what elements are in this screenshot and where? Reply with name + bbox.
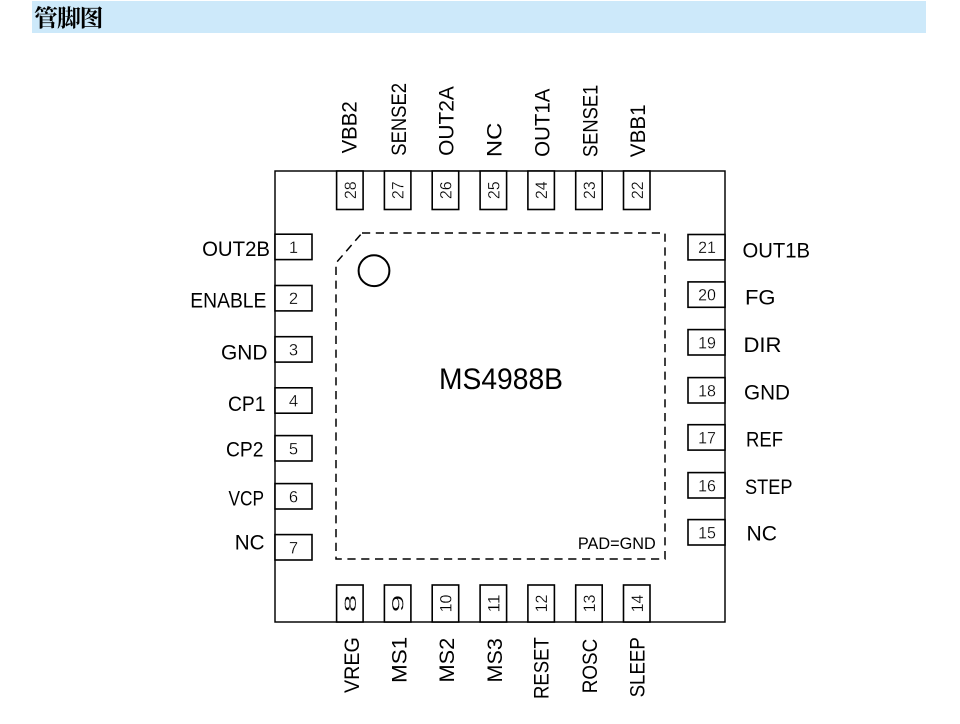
svg-text:22: 22: [628, 181, 647, 199]
svg-text:MS2: MS2: [434, 638, 459, 683]
svg-text:18: 18: [698, 381, 716, 400]
svg-text:4: 4: [289, 392, 298, 411]
svg-text:NC: NC: [482, 123, 507, 157]
svg-text:RESET: RESET: [528, 637, 553, 699]
svg-text:GND: GND: [221, 339, 268, 364]
svg-text:20: 20: [698, 286, 716, 305]
svg-text:ENABLE: ENABLE: [190, 288, 266, 313]
svg-text:25: 25: [484, 181, 503, 199]
svg-text:VREG: VREG: [339, 637, 364, 693]
svg-text:13: 13: [580, 595, 599, 613]
svg-text:16: 16: [698, 476, 716, 495]
svg-text:OUT2B: OUT2B: [202, 236, 270, 261]
svg-text:OUT2A: OUT2A: [434, 86, 459, 156]
svg-text:SLEEP: SLEEP: [624, 637, 649, 697]
svg-text:ROSC: ROSC: [577, 639, 602, 693]
svg-text:SENSE2: SENSE2: [386, 83, 411, 156]
svg-text:15: 15: [698, 523, 716, 542]
svg-text:MS1: MS1: [386, 637, 411, 683]
svg-text:NC: NC: [235, 530, 265, 555]
svg-text:5: 5: [289, 439, 298, 458]
svg-text:PAD=GND: PAD=GND: [578, 535, 656, 553]
svg-text:SENSE1: SENSE1: [578, 85, 603, 157]
svg-text:VCP: VCP: [229, 486, 265, 511]
svg-text:DIR: DIR: [744, 332, 782, 357]
svg-text:9: 9: [389, 595, 408, 613]
svg-text:24: 24: [532, 181, 551, 199]
svg-text:28: 28: [341, 181, 360, 199]
svg-text:14: 14: [628, 595, 647, 613]
svg-text:27: 27: [389, 181, 408, 199]
svg-text:MS4988B: MS4988B: [439, 363, 563, 396]
svg-text:10: 10: [437, 595, 456, 613]
svg-text:GND: GND: [744, 379, 790, 404]
svg-text:17: 17: [698, 428, 716, 447]
svg-text:VBB2: VBB2: [336, 101, 361, 153]
svg-text:8: 8: [341, 595, 360, 613]
svg-text:CP2: CP2: [226, 436, 264, 461]
svg-text:MS3: MS3: [482, 638, 507, 682]
svg-text:REF: REF: [746, 426, 783, 451]
svg-text:21: 21: [698, 238, 716, 257]
svg-text:6: 6: [289, 487, 298, 506]
svg-text:CP1: CP1: [228, 391, 266, 416]
svg-text:7: 7: [289, 538, 298, 557]
svg-text:26: 26: [437, 181, 456, 199]
svg-text:OUT1A: OUT1A: [529, 88, 554, 157]
svg-text:1: 1: [289, 238, 298, 257]
svg-text:FG: FG: [745, 284, 776, 309]
svg-text:VBB1: VBB1: [625, 104, 650, 157]
svg-text:19: 19: [698, 333, 716, 352]
svg-text:NC: NC: [747, 520, 778, 545]
svg-text:3: 3: [289, 340, 298, 359]
svg-text:23: 23: [580, 181, 599, 199]
svg-text:OUT1B: OUT1B: [743, 237, 811, 262]
svg-text:12: 12: [532, 595, 551, 613]
svg-text:11: 11: [484, 595, 503, 613]
svg-text:STEP: STEP: [745, 474, 793, 499]
svg-text:2: 2: [289, 289, 298, 308]
